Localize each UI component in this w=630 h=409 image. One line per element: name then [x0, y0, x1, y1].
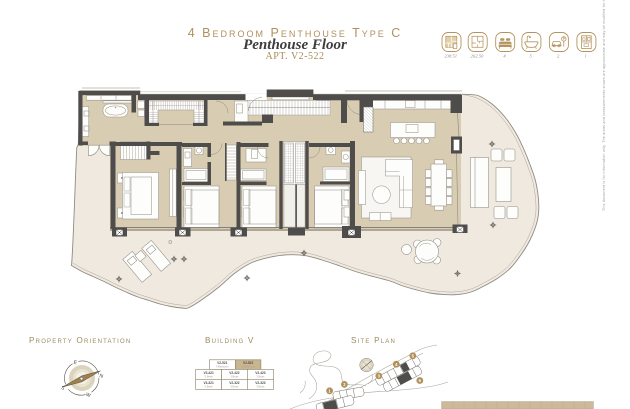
svg-text:3 Beds: 3 Beds: [256, 374, 265, 378]
svg-text:V2-323: V2-323: [255, 381, 266, 385]
svg-text:V2-321: V2-321: [203, 381, 214, 385]
svg-text:This document is for informati: This document is for information only. T…: [602, 0, 606, 211]
svg-text:N: N: [98, 373, 104, 380]
svg-text:262.50: 262.50: [471, 54, 484, 59]
svg-text:4 Bedroom: 4 Bedroom: [216, 365, 229, 369]
svg-text:V2-322: V2-322: [229, 381, 240, 385]
svg-text:1: 1: [584, 54, 586, 59]
svg-text:V2-421: V2-421: [203, 371, 214, 375]
svg-text:V2-521: V2-521: [217, 361, 228, 365]
svg-text:4 Bedroom: 4 Bedroom: [242, 365, 255, 369]
svg-text:S: S: [60, 385, 66, 392]
svg-text:4: 4: [503, 54, 506, 59]
svg-text:3 Beds: 3 Beds: [205, 374, 214, 378]
svg-text:2: 2: [557, 54, 560, 59]
svg-text:E: E: [73, 360, 79, 367]
svg-text:V2-522: V2-522: [243, 361, 254, 365]
svg-text:5: 5: [529, 54, 532, 59]
svg-text:238.51: 238.51: [444, 54, 457, 59]
svg-text:V2-423: V2-423: [255, 371, 266, 375]
svg-text:3 Beds: 3 Beds: [230, 384, 239, 388]
svg-text:3 Beds: 3 Beds: [256, 384, 265, 388]
svg-text:3 Beds: 3 Beds: [205, 384, 214, 388]
svg-text:W: W: [85, 392, 92, 399]
svg-text:3 Beds: 3 Beds: [230, 374, 239, 378]
svg-text:V2-422: V2-422: [229, 371, 240, 375]
